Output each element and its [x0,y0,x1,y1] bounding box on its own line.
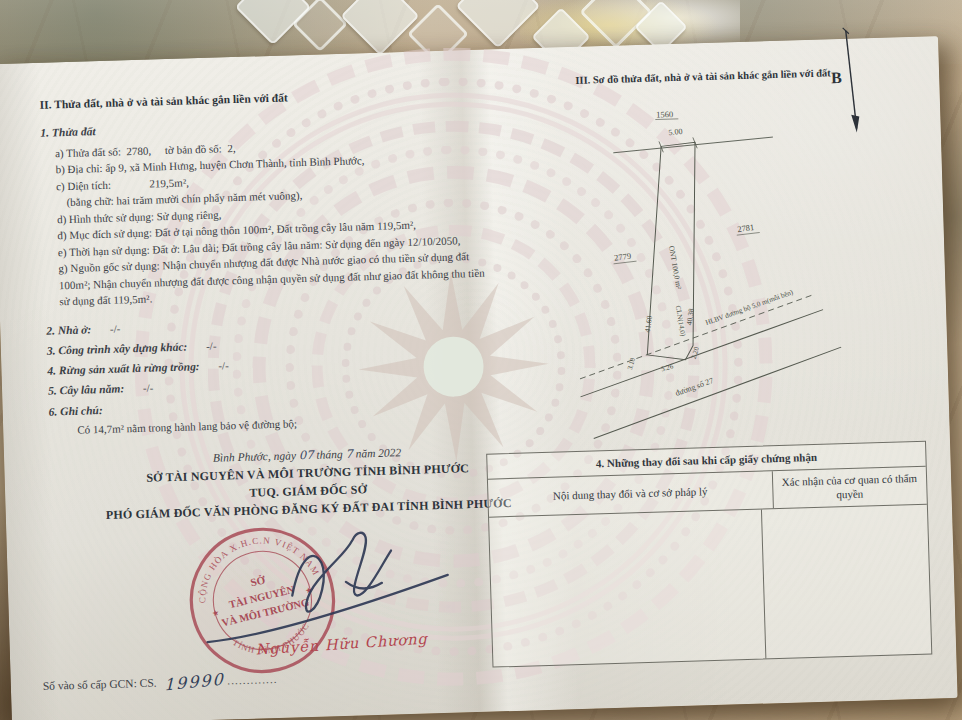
changes-table: 4. Những thay đổi sau khi cấp giấy chứng… [486,441,932,668]
item-house-label: 2. Nhà ở: [46,323,91,336]
changes-table-body-content-cell [489,509,766,666]
changes-table-body-confirm-cell [761,504,931,658]
date-month-handwritten: 7 [345,447,353,461]
plastic-emboss-square [340,0,419,56]
item-forest-label: 4. Rừng sản xuất là rừng trồng: [47,360,199,377]
section-ii: II. Thửa đất, nhà ở và tài sản khác gắn … [39,84,495,439]
map-dim-bevel-left: 3.10 [626,356,637,370]
changes-table-body [489,504,931,666]
parcel-map: 5.00 1560 2779 2781 41.60 40.38 ONT 100,… [472,87,922,452]
item-house-value: -/- [110,322,121,334]
date-day-handwritten: 07 [299,448,314,462]
serial-dotted-line: ............. [227,673,278,686]
map-corridor-label: HLBV đường bộ 5,0 m(mỗi bên) [704,288,794,327]
serial-label: Số vào sổ cấp GCN: CS. [43,677,157,692]
item-perennial-label: 5. Cây lâu năm: [48,383,124,397]
map-dim-right: 40.38 [685,308,696,326]
item-perennial-value: -/- [143,382,154,394]
map-parcel-top: 1560 [656,109,673,119]
map-dim-top: 5.00 [668,127,683,137]
changes-table-col-confirm: Xác nhận của cơ quan có thẩm quyền [772,467,926,508]
item-construction-value: -/- [206,339,217,351]
map-road-label: đường số 27 [674,376,714,398]
map-parcel-label: ONT 100,0 m² [667,245,683,291]
item-forest-value: -/- [218,359,229,371]
date-suffix: năm 2022 [355,446,401,459]
certificate-page: II. Thửa đất, nhà ở và tài sản khác gắn … [0,36,958,720]
photo-scene: II. Thửa đất, nhà ở và tài sản khác gắn … [0,0,962,720]
date-mid: tháng [316,448,343,461]
map-neighbor-left: 2779 [613,251,631,263]
map-dim-left: 41.60 [643,315,654,333]
item-notes-label: 6. Ghi chú: [49,404,103,418]
map-neighbor-right: 2781 [737,222,755,234]
item-construction-label: 3. Công trình xây dựng khác: [47,340,188,356]
date-prefix: Bình Phước, ngày [213,449,296,463]
north-label: B [831,69,842,86]
map-parcel-sublabel: CLN(14,0) [674,305,687,337]
